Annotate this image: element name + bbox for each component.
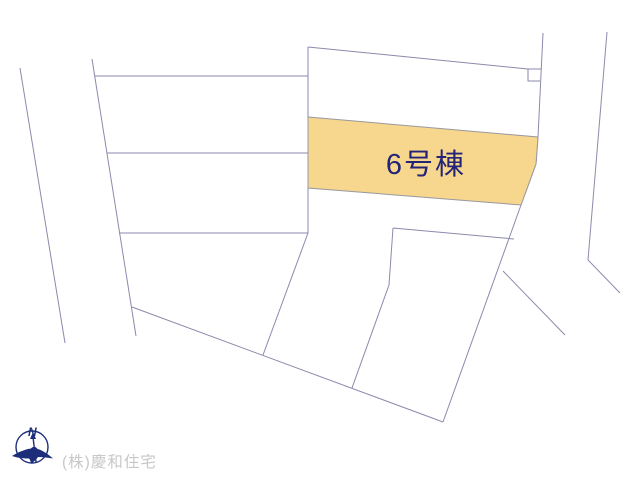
center-right-parcel-left-edge <box>352 228 393 388</box>
site-plan-canvas: 6号棟 N (株)慶和住宅 <box>0 0 640 480</box>
right-main-boundary <box>443 33 543 422</box>
road-edge-left-inner <box>92 59 136 336</box>
road-edge-bottom <box>132 307 443 422</box>
road-edge-left-outer <box>20 68 65 343</box>
company-watermark: (株)慶和住宅 <box>62 453 157 471</box>
road-branch-diagonal <box>503 271 565 335</box>
compass-bird-icon <box>12 447 53 464</box>
center-parcel-left-edge <box>263 233 308 355</box>
center-right-parcel-top-edge <box>393 228 514 239</box>
compass: N <box>12 425 53 464</box>
highlighted-parcel-label: 6号棟 <box>386 148 466 181</box>
compass-north-label: N <box>28 425 37 439</box>
upper-parcel-corner-notch <box>528 69 540 81</box>
road-edge-right <box>588 32 620 293</box>
upper-parcel-top-edge <box>308 47 541 69</box>
site-plan-drawing: 6号棟 N (株)慶和住宅 <box>0 0 640 480</box>
